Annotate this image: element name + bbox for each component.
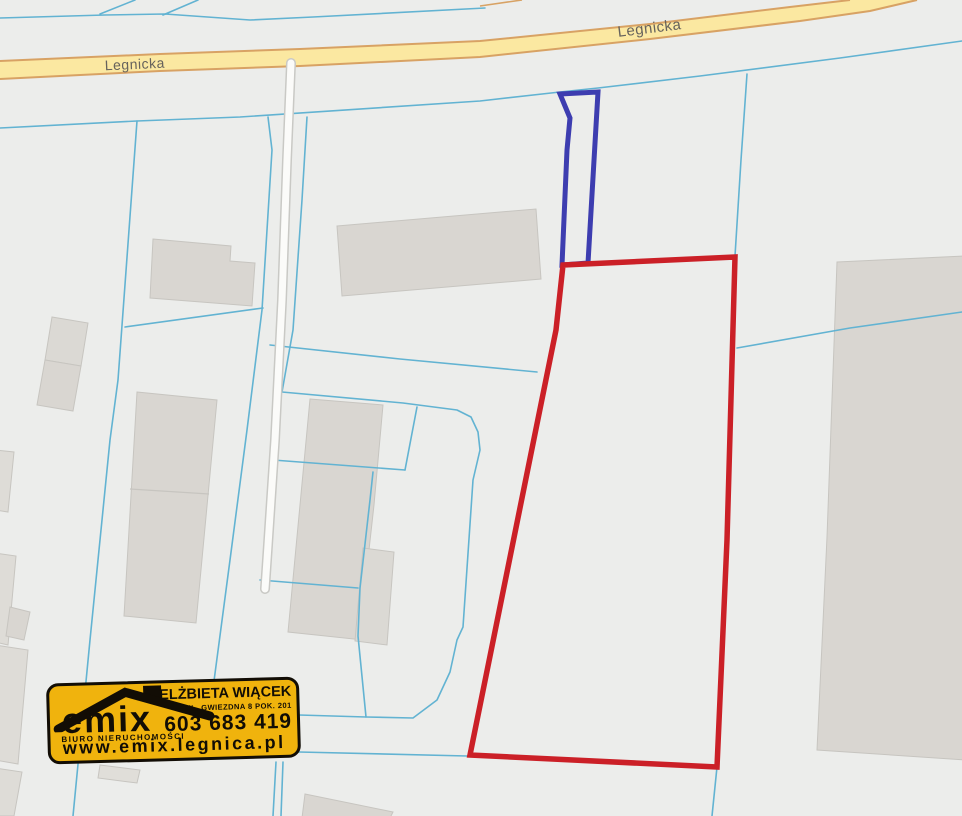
building-edge-1 <box>0 450 14 512</box>
boundary-top-left <box>0 8 485 20</box>
boundary-road-flank-left <box>214 117 272 681</box>
boundary-spur-a <box>100 0 135 14</box>
building-edge-5 <box>0 768 22 816</box>
boundary-below-red <box>712 767 717 816</box>
boundary-bottom-horiz <box>299 752 467 756</box>
agency-watermark: emix BIURO NIERUCHOMOŚCI ELŻBIETA WIĄCEK… <box>46 676 301 764</box>
building-central-tall <box>124 392 217 623</box>
building-tiny-bottom <box>98 765 140 783</box>
building-top-center <box>337 209 541 296</box>
building-edge-3 <box>0 645 28 764</box>
building-small-upper <box>45 317 88 366</box>
side-road <box>265 63 291 589</box>
parcel-outline-blue[interactable] <box>560 92 598 265</box>
boundary-to-red-mid <box>270 345 537 372</box>
building-far-right <box>817 256 962 760</box>
map-canvas[interactable]: LegnickaLegnicka emix BIURO NIERUCHOMOŚC… <box>0 0 962 816</box>
building-edge-4 <box>6 607 30 640</box>
boundary-vert-short <box>405 407 417 470</box>
boundary-branch-red <box>735 74 747 256</box>
boundary-stub-a <box>273 762 276 816</box>
road-edge-stub <box>480 0 522 6</box>
building-small-lower <box>37 360 81 411</box>
boundary-spur-b <box>163 0 198 15</box>
building-bottom-center <box>302 794 393 816</box>
building-l-shape <box>150 239 255 306</box>
parcel-outline-red[interactable] <box>470 257 735 767</box>
boundary-horiz-left <box>125 308 263 327</box>
street-label-legnicka-left: Legnicka <box>104 55 165 74</box>
boundary-stub-b <box>281 762 283 816</box>
